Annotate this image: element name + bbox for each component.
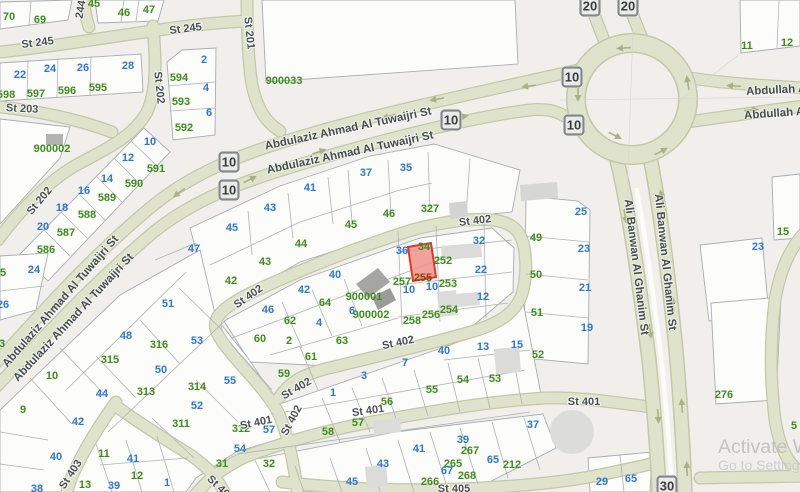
svg-text:267: 267: [461, 445, 479, 457]
svg-text:41: 41: [413, 443, 425, 455]
svg-text:55: 55: [426, 384, 438, 396]
svg-text:252: 252: [434, 255, 452, 267]
svg-text:268: 268: [458, 470, 476, 482]
svg-text:900002: 900002: [353, 309, 390, 321]
svg-text:10: 10: [46, 370, 58, 382]
svg-text:44: 44: [96, 388, 109, 400]
svg-text:24: 24: [44, 63, 57, 75]
svg-text:32: 32: [473, 235, 485, 247]
svg-text:595: 595: [89, 82, 107, 94]
svg-text:20: 20: [37, 221, 49, 233]
svg-text:4: 4: [203, 82, 210, 94]
svg-text:40: 40: [50, 451, 62, 463]
svg-text:22: 22: [14, 69, 26, 81]
svg-text:46: 46: [383, 208, 395, 220]
svg-text:900002: 900002: [34, 143, 71, 155]
svg-text:39: 39: [457, 434, 469, 446]
svg-text:2: 2: [201, 54, 207, 66]
svg-text:10: 10: [144, 136, 156, 148]
svg-text:42: 42: [72, 416, 84, 428]
svg-text:30: 30: [660, 479, 674, 492]
svg-text:3: 3: [361, 370, 367, 382]
svg-text:62: 62: [284, 315, 296, 327]
svg-text:15: 15: [777, 226, 789, 238]
svg-text:31: 31: [216, 458, 228, 470]
svg-text:266: 266: [421, 476, 439, 488]
svg-text:311: 311: [172, 418, 190, 430]
svg-text:586: 586: [37, 244, 55, 256]
svg-text:St 401: St 401: [568, 396, 600, 408]
svg-text:44: 44: [295, 238, 308, 250]
svg-text:23: 23: [578, 243, 590, 255]
svg-text:40: 40: [438, 345, 450, 357]
svg-text:26: 26: [0, 299, 9, 311]
svg-text:19: 19: [581, 322, 593, 334]
svg-text:36: 36: [396, 245, 408, 257]
svg-text:43: 43: [264, 202, 276, 214]
svg-text:53: 53: [191, 335, 203, 347]
svg-text:St 203: St 203: [6, 102, 39, 116]
svg-text:Go to Settings t: Go to Settings t: [718, 457, 800, 473]
svg-text:591: 591: [147, 163, 165, 175]
svg-text:47: 47: [188, 243, 200, 255]
svg-text:61: 61: [305, 351, 317, 363]
svg-text:23: 23: [752, 241, 764, 253]
svg-text:6: 6: [349, 305, 355, 317]
svg-text:40: 40: [329, 269, 341, 281]
svg-text:52: 52: [191, 400, 203, 412]
svg-text:12: 12: [781, 37, 793, 49]
svg-text:43: 43: [377, 458, 389, 470]
svg-text:38: 38: [31, 483, 43, 492]
svg-text:46: 46: [118, 7, 130, 19]
svg-text:45: 45: [226, 222, 238, 234]
svg-text:65: 65: [625, 473, 637, 485]
svg-text:7: 7: [402, 357, 408, 369]
svg-text:11: 11: [98, 448, 110, 460]
svg-text:39: 39: [108, 480, 120, 492]
svg-text:St 405: St 405: [438, 483, 470, 492]
svg-text:598: 598: [0, 89, 15, 101]
svg-text:18: 18: [56, 202, 68, 214]
svg-text:593: 593: [172, 96, 190, 108]
svg-text:58: 58: [322, 426, 334, 438]
svg-text:313: 313: [137, 386, 155, 398]
svg-text:11: 11: [741, 40, 753, 52]
svg-text:12: 12: [131, 470, 143, 482]
svg-text:42: 42: [225, 275, 237, 287]
svg-text:46: 46: [262, 304, 274, 316]
svg-text:51: 51: [162, 298, 174, 310]
svg-text:37: 37: [527, 419, 539, 431]
svg-text:70: 70: [3, 11, 15, 23]
svg-text:212: 212: [503, 459, 521, 471]
svg-text:48: 48: [120, 330, 132, 342]
svg-text:51: 51: [531, 307, 543, 319]
svg-text:50: 50: [530, 269, 542, 281]
svg-text:10: 10: [403, 284, 415, 296]
svg-text:253: 253: [439, 278, 457, 290]
svg-text:15: 15: [511, 339, 523, 351]
svg-text:20: 20: [583, 0, 597, 14]
svg-text:55: 55: [224, 375, 236, 387]
svg-text:52: 52: [532, 349, 544, 361]
svg-text:49: 49: [530, 232, 542, 244]
svg-text:589: 589: [98, 192, 116, 204]
svg-text:900001: 900001: [346, 291, 383, 303]
svg-text:16: 16: [78, 185, 90, 197]
svg-text:24: 24: [28, 264, 41, 276]
svg-text:315: 315: [101, 354, 119, 366]
svg-text:12: 12: [477, 291, 489, 303]
svg-text:5: 5: [0, 267, 6, 279]
svg-text:35: 35: [400, 162, 412, 174]
svg-text:256: 256: [422, 309, 440, 321]
svg-text:327: 327: [421, 203, 439, 215]
svg-text:1: 1: [164, 477, 170, 489]
svg-text:25: 25: [575, 206, 587, 218]
svg-text:588: 588: [78, 209, 96, 221]
svg-text:34: 34: [418, 241, 431, 253]
svg-text:13: 13: [79, 479, 91, 491]
svg-text:47: 47: [143, 4, 155, 16]
svg-text:258: 258: [403, 315, 421, 327]
svg-text:314: 314: [188, 381, 207, 393]
svg-text:596: 596: [58, 85, 76, 97]
svg-text:316: 316: [150, 339, 168, 351]
svg-text:14: 14: [101, 173, 114, 185]
svg-text:59: 59: [278, 368, 290, 380]
svg-text:592: 592: [175, 122, 193, 134]
svg-text:45: 45: [346, 476, 358, 488]
svg-text:43: 43: [259, 256, 271, 268]
svg-text:67: 67: [441, 465, 453, 477]
svg-text:20: 20: [621, 0, 635, 14]
svg-text:37: 37: [360, 167, 372, 179]
svg-text:9: 9: [20, 404, 26, 416]
svg-text:29: 29: [596, 476, 608, 488]
svg-text:590: 590: [125, 178, 143, 190]
svg-text:45: 45: [345, 219, 357, 231]
svg-text:22: 22: [475, 264, 487, 276]
svg-text:28: 28: [122, 60, 134, 72]
svg-text:50: 50: [155, 364, 167, 376]
svg-text:13: 13: [477, 341, 489, 353]
svg-text:45: 45: [88, 0, 100, 10]
svg-text:21: 21: [579, 282, 591, 294]
svg-text:Activate Wi: Activate Wi: [718, 436, 800, 458]
svg-text:69: 69: [34, 14, 46, 26]
svg-text:26: 26: [77, 62, 89, 74]
svg-text:65: 65: [487, 454, 499, 466]
svg-text:587: 587: [57, 227, 75, 239]
svg-text:60: 60: [254, 333, 266, 345]
svg-text:64: 64: [319, 297, 332, 309]
svg-text:276: 276: [715, 389, 733, 401]
svg-text:254: 254: [440, 304, 459, 316]
svg-text:54: 54: [234, 443, 247, 455]
svg-text:5: 5: [791, 420, 797, 432]
svg-text:41: 41: [304, 182, 316, 194]
svg-text:6: 6: [206, 107, 212, 119]
svg-text:900033: 900033: [266, 75, 303, 87]
svg-text:2: 2: [286, 335, 292, 347]
svg-text:41: 41: [127, 453, 139, 465]
svg-text:1: 1: [330, 387, 336, 399]
svg-text:597: 597: [27, 88, 45, 100]
svg-text:32: 32: [263, 458, 275, 470]
svg-text:42: 42: [298, 284, 310, 296]
svg-text:63: 63: [336, 335, 348, 347]
svg-text:594: 594: [170, 72, 189, 84]
svg-text:3: 3: [0, 338, 5, 350]
svg-text:4: 4: [316, 317, 323, 329]
svg-text:54: 54: [457, 374, 470, 386]
svg-text:255: 255: [414, 272, 432, 284]
svg-text:12: 12: [122, 152, 134, 164]
svg-text:53: 53: [489, 373, 501, 385]
